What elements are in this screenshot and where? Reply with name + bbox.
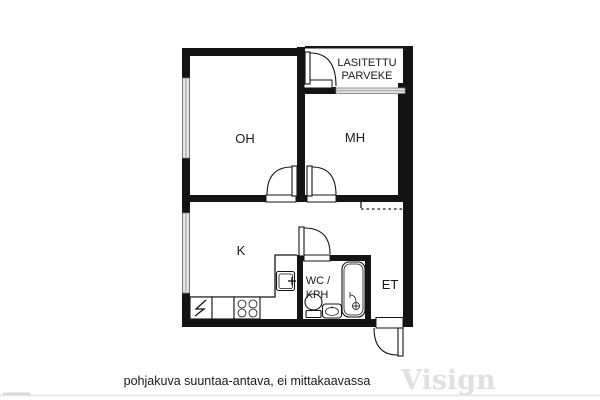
tiny-watermark (3, 393, 30, 396)
door-swing-arc (304, 228, 330, 254)
balcony-door (304, 52, 336, 88)
door-swing-arc (312, 167, 336, 195)
bedroom-door (307, 166, 336, 202)
room-label-bedroom: MH (345, 130, 365, 145)
floorplan-drawing: OH MH K WC / KPH ET LASITETTU PARVEKE po… (0, 0, 600, 400)
room-label-wc-line2: KPH (306, 289, 329, 301)
door-leaf (299, 227, 304, 256)
room-label-wc-line1: WC / (306, 275, 331, 287)
room-label-living: OH (235, 131, 255, 146)
balcony-glazing-line (305, 46, 413, 49)
door-swing-arc (267, 167, 292, 195)
counter-unit (212, 297, 234, 319)
footer-divider-line (0, 395, 600, 397)
room-label-balcony-line2: PARVEKE (342, 70, 393, 82)
room-label-balcony-line1: LASITETTU (337, 57, 396, 69)
floorplan-image: OH MH K WC / KPH ET LASITETTU PARVEKE po… (0, 0, 600, 400)
fridge-icon (190, 297, 212, 319)
door-leaf (305, 52, 310, 84)
wall (182, 48, 305, 56)
door-threshold (304, 255, 330, 261)
wall (398, 83, 404, 197)
wall (297, 47, 305, 202)
visign-watermark: Visign (400, 365, 496, 396)
wall (365, 255, 371, 319)
door-swing-arc (374, 328, 398, 355)
door-leaf (292, 166, 297, 196)
door-threshold (376, 318, 403, 329)
room-label-kitchen: K (237, 243, 246, 258)
washbasin-drain (331, 307, 333, 309)
bathroom-door (299, 227, 330, 261)
toilet-tank (306, 311, 321, 318)
door-leaf (398, 328, 403, 356)
wall (297, 255, 303, 319)
living-room-door (266, 166, 297, 202)
kitchen-fixtures (190, 255, 297, 319)
room-label-hallway: ET (382, 277, 399, 292)
entrance-door (374, 318, 403, 357)
door-leaf (307, 166, 312, 196)
caption-text: pohjakuva suuntaa-antava, ei mittakaavas… (124, 374, 371, 388)
